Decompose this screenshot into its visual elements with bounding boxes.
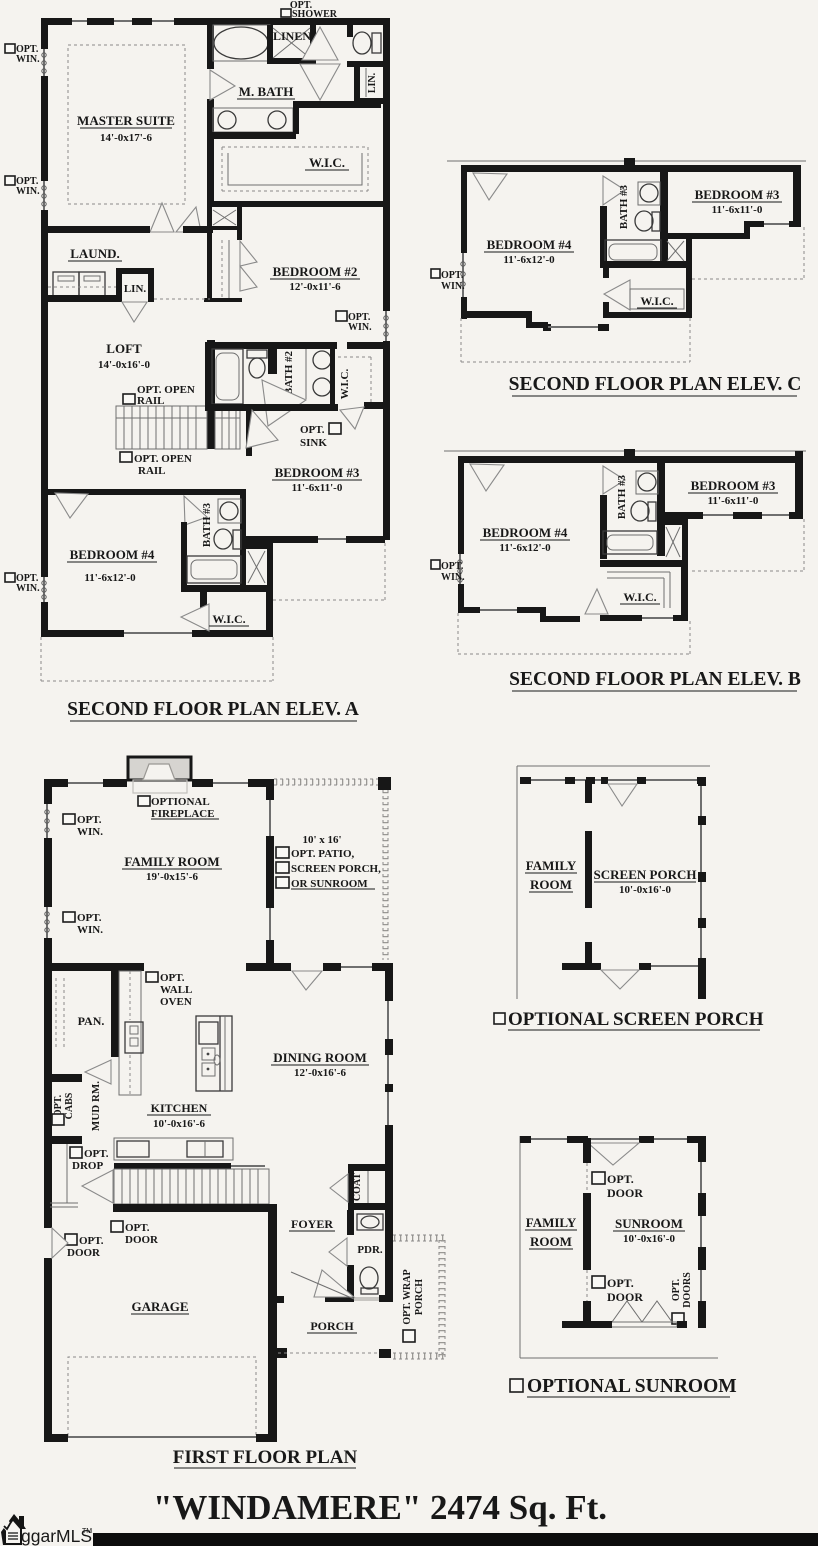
svg-text:BEDROOM #4: BEDROOM #4	[483, 525, 568, 540]
svg-text:10'-0x16'-0: 10'-0x16'-0	[619, 884, 671, 896]
svg-text:WIN.: WIN.	[441, 281, 465, 292]
svg-text:OR SUNROOM: OR SUNROOM	[291, 878, 368, 890]
svg-text:OPTIONAL SUNROOM: OPTIONAL SUNROOM	[527, 1376, 737, 1397]
svg-text:DOOR: DOOR	[607, 1290, 643, 1304]
svg-text:DOOR: DOOR	[125, 1234, 159, 1246]
svg-text:"WINDAMERE" 2474 Sq. Ft.: "WINDAMERE" 2474 Sq. Ft.	[153, 1488, 607, 1527]
svg-text:OPT.: OPT.	[671, 1278, 682, 1301]
svg-text:LINEN: LINEN	[273, 29, 311, 43]
svg-text:OPT.: OPT.	[79, 1235, 104, 1247]
svg-text:SINK: SINK	[300, 437, 327, 449]
svg-text:BATH #2: BATH #2	[283, 350, 295, 395]
svg-text:SHOWER: SHOWER	[292, 9, 338, 20]
svg-text:SCREEN PORCH,: SCREEN PORCH,	[291, 863, 381, 875]
svg-text:MUD RM.: MUD RM.	[90, 1081, 102, 1131]
svg-text:OPT.: OPT.	[84, 1148, 109, 1160]
svg-text:M. BATH: M. BATH	[239, 84, 294, 99]
svg-text:FIREPLACE: FIREPLACE	[151, 808, 215, 820]
svg-text:ROOM: ROOM	[530, 877, 572, 892]
svg-text:LIN.: LIN.	[124, 283, 147, 295]
svg-text:PAN.: PAN.	[78, 1014, 105, 1028]
svg-text:FAMILY: FAMILY	[526, 858, 577, 873]
svg-text:FAMILY: FAMILY	[526, 1215, 577, 1230]
svg-text:11'-6x11'-0: 11'-6x11'-0	[292, 482, 343, 494]
svg-text:FIRST FLOOR PLAN: FIRST FLOOR PLAN	[173, 1447, 358, 1468]
svg-text:DOOR: DOOR	[67, 1247, 101, 1259]
svg-text:OPT.: OPT.	[607, 1276, 634, 1290]
svg-text:TM: TM	[82, 1528, 92, 1535]
svg-text:COAT: COAT	[352, 1173, 363, 1201]
svg-text:OPT.: OPT.	[125, 1222, 150, 1234]
svg-text:11'-6x11'-0: 11'-6x11'-0	[712, 204, 763, 216]
svg-text:BEDROOM #2: BEDROOM #2	[273, 264, 358, 279]
svg-text:OPT.: OPT.	[77, 814, 102, 826]
svg-text:OVEN: OVEN	[160, 996, 192, 1008]
svg-text:11'-6x12'-0: 11'-6x12'-0	[84, 572, 136, 584]
svg-text:BEDROOM #3: BEDROOM #3	[275, 465, 360, 480]
svg-text:OPT.: OPT.	[160, 972, 185, 984]
svg-text:19'-0x15'-6: 19'-0x15'-6	[146, 871, 198, 883]
svg-text:PORCH: PORCH	[310, 1319, 354, 1333]
svg-text:W.I.C.: W.I.C.	[339, 369, 351, 400]
svg-text:WALL: WALL	[160, 984, 192, 996]
svg-text:SUNROOM: SUNROOM	[615, 1216, 683, 1231]
svg-text:11'-6x12'-0: 11'-6x12'-0	[503, 254, 555, 266]
svg-text:SECOND FLOOR PLAN ELEV. A: SECOND FLOOR PLAN ELEV. A	[67, 699, 359, 720]
svg-text:PDR.: PDR.	[357, 1244, 383, 1256]
svg-text:BEDROOM #4: BEDROOM #4	[70, 547, 155, 562]
svg-text:LIN.: LIN.	[367, 72, 378, 93]
svg-text:OPT.: OPT.	[441, 561, 464, 572]
svg-text:DOORS: DOORS	[682, 1272, 693, 1308]
svg-text:W.I.C.: W.I.C.	[640, 294, 673, 308]
svg-text:OPT. OPEN: OPT. OPEN	[134, 453, 192, 465]
svg-text:W.I.C.: W.I.C.	[309, 155, 345, 170]
svg-text:BEDROOM #3: BEDROOM #3	[695, 187, 780, 202]
svg-text:BEDROOM #3: BEDROOM #3	[691, 478, 776, 493]
svg-text:OPT.: OPT.	[441, 270, 464, 281]
svg-text:OPT. PATIO,: OPT. PATIO,	[291, 848, 355, 860]
svg-text:WIN.: WIN.	[16, 583, 40, 594]
svg-text:PORCH: PORCH	[414, 1279, 425, 1315]
svg-text:11'-6x12'-0: 11'-6x12'-0	[499, 542, 551, 554]
svg-text:SECOND FLOOR PLAN ELEV. B: SECOND FLOOR PLAN ELEV. B	[509, 669, 801, 690]
svg-text:OPT. WRAP: OPT. WRAP	[402, 1269, 413, 1324]
svg-text:WIN.: WIN.	[441, 572, 465, 583]
svg-text:RAIL: RAIL	[138, 465, 166, 477]
svg-text:RAIL: RAIL	[137, 395, 165, 407]
svg-text:FAMILY ROOM: FAMILY ROOM	[124, 854, 219, 869]
svg-text:KITCHEN: KITCHEN	[151, 1101, 208, 1115]
svg-text:MASTER SUITE: MASTER SUITE	[77, 113, 175, 128]
svg-text:WIN.: WIN.	[16, 54, 40, 65]
svg-text:10'-0x16'-6: 10'-0x16'-6	[153, 1118, 205, 1130]
svg-text:DOOR: DOOR	[607, 1186, 643, 1200]
svg-text:OPT.: OPT.	[300, 424, 325, 436]
svg-text:LAUND.: LAUND.	[70, 246, 119, 261]
svg-text:OPT.: OPT.	[607, 1172, 634, 1186]
svg-text:WIN.: WIN.	[77, 924, 103, 936]
svg-text:11'-6x11'-0: 11'-6x11'-0	[708, 495, 759, 507]
svg-text:WIN.: WIN.	[77, 826, 103, 838]
svg-text:14'-0x17'-6: 14'-0x17'-6	[100, 132, 152, 144]
svg-text:10'-0x16'-0: 10'-0x16'-0	[623, 1233, 675, 1245]
svg-text:W.I.C.: W.I.C.	[212, 612, 245, 626]
svg-text:BATH #3: BATH #3	[618, 184, 630, 229]
svg-text:14'-0x16'-0: 14'-0x16'-0	[98, 359, 150, 371]
svg-text:OPT.: OPT.	[77, 912, 102, 924]
svg-text:BATH #3: BATH #3	[616, 474, 628, 519]
svg-text:CABS: CABS	[64, 1092, 75, 1119]
svg-text:12'-0x16'-6: 12'-0x16'-6	[294, 1067, 346, 1079]
svg-text:BEDROOM #4: BEDROOM #4	[487, 237, 572, 252]
svg-text:DROP: DROP	[72, 1160, 103, 1172]
svg-text:W.I.C.: W.I.C.	[623, 590, 656, 604]
svg-text:BATH #3: BATH #3	[201, 502, 213, 547]
svg-text:WIN.: WIN.	[16, 186, 40, 197]
svg-text:SECOND FLOOR PLAN ELEV. C: SECOND FLOOR PLAN ELEV. C	[509, 374, 802, 395]
svg-text:WIN.: WIN.	[348, 322, 372, 333]
svg-text:DINING ROOM: DINING ROOM	[273, 1050, 367, 1065]
svg-text:LOFT: LOFT	[106, 341, 142, 356]
svg-text:SCREEN PORCH: SCREEN PORCH	[594, 867, 697, 882]
svg-text:OPTIONAL: OPTIONAL	[151, 796, 210, 808]
svg-text:ROOM: ROOM	[530, 1234, 572, 1249]
svg-text:GARAGE: GARAGE	[131, 1299, 188, 1314]
svg-text:12'-0x11'-6: 12'-0x11'-6	[289, 281, 341, 293]
svg-text:OPTIONAL SCREEN PORCH: OPTIONAL SCREEN PORCH	[508, 1009, 764, 1030]
svg-text:10' x 16': 10' x 16'	[302, 834, 341, 846]
svg-text:FOYER: FOYER	[291, 1217, 333, 1231]
